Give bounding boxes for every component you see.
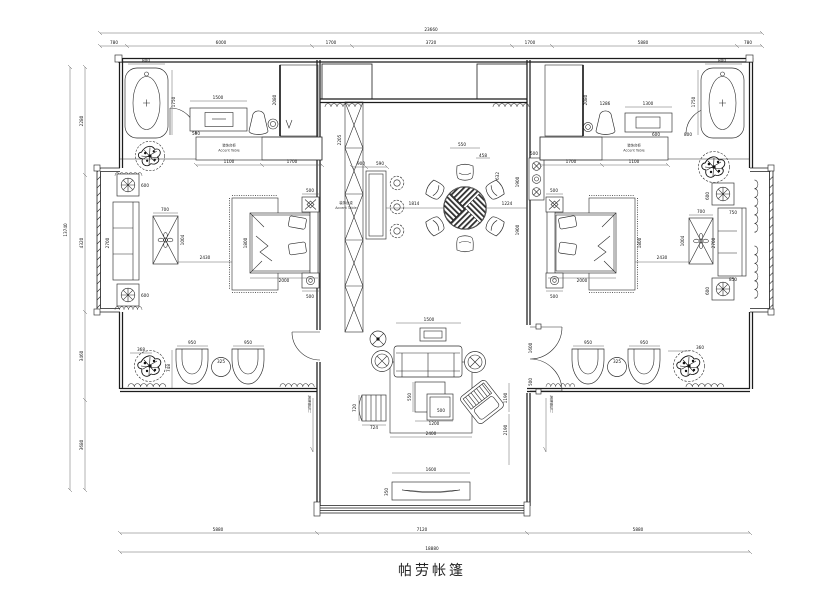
dim-tub-l-left: 1750 bbox=[171, 96, 176, 107]
dim-baysofa-right: 2700 bbox=[711, 237, 716, 248]
dim-tea-l-left: 1004 bbox=[180, 234, 185, 245]
dim-top-0: 780 bbox=[110, 40, 118, 45]
nightstand-left-bottom bbox=[302, 273, 319, 288]
dim-console-w: 900 bbox=[357, 161, 365, 166]
dim-ns-left-bot: 500 bbox=[306, 294, 314, 299]
dim-bed-l-right: 2000 bbox=[577, 278, 588, 283]
dim-sidetable-left: 325 bbox=[217, 359, 225, 364]
dim-bench-l: 720 bbox=[352, 404, 357, 412]
dim-baytable-left-2: 600 bbox=[141, 293, 149, 298]
dim-top-3: 3720 bbox=[426, 40, 437, 45]
right-wing: 2080 1286 1300 600 800 1000 800 1750 装饰台… bbox=[538, 58, 746, 384]
dim-600: 600 bbox=[652, 132, 660, 137]
dim-plant-left: 368 bbox=[137, 347, 145, 352]
dim-top-2: 1700 bbox=[326, 40, 337, 45]
dim-cab-b-left: 1700 bbox=[287, 159, 298, 164]
dim-chair1-right: 950 bbox=[584, 340, 592, 345]
dimension-chain-bottom: 5880 7120 5880 18880 bbox=[118, 527, 752, 554]
dim-ct-d: 550 bbox=[407, 393, 412, 401]
dim-top-total: 23660 bbox=[424, 27, 438, 32]
dim-desk2: 1300 bbox=[643, 101, 654, 106]
balcony-right: 600 600 750 2700 850 bbox=[705, 183, 746, 300]
dim-tv-w: 1600 bbox=[426, 467, 437, 472]
floorplan-drawing: 23660 780 6000 1700 3720 1700 5880 780 1… bbox=[0, 0, 837, 592]
floor-lamp bbox=[370, 331, 386, 347]
dim-chair-h-left: 748 bbox=[166, 364, 171, 372]
dim-tv-d: 350 bbox=[384, 488, 389, 496]
fireplace-shelf bbox=[420, 328, 446, 341]
dim-bench-w: 724 bbox=[370, 425, 378, 430]
cabinet-label-cn-right: 装饰台柜 bbox=[627, 143, 641, 148]
shower-right bbox=[545, 65, 583, 136]
dim-800: 800 bbox=[684, 132, 692, 137]
tea-table-right bbox=[689, 218, 713, 264]
nightstand-right-bottom bbox=[546, 273, 563, 288]
dim-left-0: 2280 bbox=[79, 115, 84, 126]
sofa bbox=[394, 346, 462, 377]
dim-top-5: 5880 bbox=[638, 40, 649, 45]
dim-top-6: 780 bbox=[744, 40, 752, 45]
dim-baysofa-left: 2700 bbox=[105, 237, 110, 248]
dim-bed-gap-right: 2430 bbox=[657, 255, 668, 260]
sliding-door-label-left: 玻璃推拉门 bbox=[307, 394, 313, 452]
bathtub-left bbox=[125, 68, 168, 138]
dim-tub-w-right: 800 bbox=[718, 58, 726, 63]
dim-bottom-2: 5880 bbox=[633, 527, 644, 532]
dim-cell-2: 1900 bbox=[515, 224, 520, 235]
center-hall: 2205 装饰台桌 Accent Table 900 590 1814 1224… bbox=[335, 102, 544, 332]
dim-chair1-left: 950 bbox=[188, 340, 196, 345]
dim-baysofa-b-right: 850 bbox=[729, 277, 737, 282]
dim-living-d: 2190 bbox=[503, 424, 508, 435]
dim-shower-left: 2080 bbox=[272, 94, 277, 105]
dim-ns-right-top: 500 bbox=[550, 188, 558, 193]
dim-cab-b-right: 1700 bbox=[566, 159, 577, 164]
side-table-right bbox=[465, 352, 486, 373]
dim-door-leaf: 500 bbox=[528, 378, 533, 386]
dim-baytable-right-2: 600 bbox=[705, 287, 710, 295]
dim-rug-gap: 1190 bbox=[503, 392, 508, 403]
dim-bottom-1: 7120 bbox=[417, 527, 428, 532]
dim-bed-gap-left: 2430 bbox=[200, 255, 211, 260]
dim-console-gap: 590 bbox=[376, 161, 384, 166]
dim-cell-1: 1900 bbox=[515, 176, 520, 187]
dim-bed-l-left: 2000 bbox=[279, 278, 290, 283]
sliding-door-text-left: 玻璃推拉门 bbox=[307, 394, 311, 413]
dim-tea-w-right: 700 bbox=[697, 209, 705, 214]
dim-baysofa-w-right: 750 bbox=[729, 210, 737, 215]
balcony-left: 600 600 2700 bbox=[105, 174, 149, 306]
dim-cab-a-right: 1100 bbox=[629, 159, 640, 164]
dim-ct-a: 500 bbox=[437, 408, 445, 413]
sliding-door-text-right: 玻璃推拉门 bbox=[549, 394, 553, 413]
dim-left-2: 3460 bbox=[79, 350, 84, 361]
side-table-left bbox=[372, 351, 393, 372]
dim-chair-back: 550 bbox=[458, 142, 466, 147]
dim-left-total: 13740 bbox=[63, 223, 68, 237]
dim-ns-left-top: 500 bbox=[306, 188, 314, 193]
lounge-zone-right: 950 950 325 360 bbox=[572, 340, 705, 384]
dim-sofa-w: 1500 bbox=[424, 317, 435, 322]
living-room: 1500 550 500 1200 720 724 2400 1190 2190… bbox=[307, 317, 553, 500]
dim-sidetable-right: 325 bbox=[613, 359, 621, 364]
console-table: 装饰台桌 Accent Table bbox=[335, 171, 404, 239]
dim-dining-gap: 1814 bbox=[409, 201, 420, 206]
dim-left-1: 4320 bbox=[79, 237, 84, 248]
drawing-title: 帕劳帐篷 bbox=[398, 563, 466, 579]
armchair bbox=[459, 379, 505, 425]
tea-table-left bbox=[153, 216, 178, 264]
dim-cab-a-left: 1100 bbox=[224, 159, 235, 164]
dim-left-3: 3680 bbox=[79, 439, 84, 450]
dim-cab-strip: 500 bbox=[530, 151, 538, 156]
dim-tub-w-left: 800 bbox=[142, 58, 150, 63]
dim-chair2-left: 950 bbox=[244, 340, 252, 345]
dim-tea-l-right: 1004 bbox=[680, 235, 685, 246]
dresser-cabinet-left: 装饰台柜 Accent Table bbox=[196, 137, 322, 160]
dim-rug-w: 2400 bbox=[426, 431, 437, 436]
console-label-en: Accent Table bbox=[335, 206, 356, 210]
dim-shower-right: 2080 bbox=[583, 94, 588, 105]
dresser-cabinet-right: 装饰台柜 Accent Table bbox=[540, 137, 668, 160]
dim-chair-w: 458 bbox=[479, 153, 487, 158]
candle-cabinet-right bbox=[529, 158, 544, 200]
cabinet-label-cn-left: 装饰台柜 bbox=[222, 143, 236, 148]
dim-chair2: 1286 bbox=[600, 101, 611, 106]
lounge-zone-left: 950 950 325 368 748 bbox=[130, 340, 264, 388]
cabinet-label-en-right: Accent Table bbox=[623, 149, 644, 153]
dim-top-1: 6000 bbox=[216, 40, 227, 45]
bench bbox=[359, 395, 386, 421]
dim-plant-right: 360 bbox=[696, 345, 704, 350]
dim-500-left: 500 bbox=[192, 131, 200, 136]
console-label-cn: 装饰台桌 bbox=[339, 200, 353, 205]
plant-left-top bbox=[135, 141, 164, 170]
dimension-chain-left: 13740 2280 4320 3460 3680 bbox=[63, 65, 87, 492]
sliding-door-label-right: 玻璃推拉门 bbox=[544, 394, 554, 452]
dim-bed-w-right: 1800 bbox=[637, 237, 642, 248]
dimension-chain-top: 23660 780 6000 1700 3720 1700 5880 780 bbox=[98, 27, 764, 48]
floorplan-sheet: 23660 780 6000 1700 3720 1700 5880 780 1… bbox=[0, 0, 837, 592]
vanity-desk-right bbox=[583, 111, 672, 135]
dim-bottom-0: 5880 bbox=[213, 527, 224, 532]
dim-door-w: 1600 bbox=[528, 342, 533, 353]
dim-desk-left: 1500 bbox=[213, 95, 224, 100]
dim-wall-gap: 1224 bbox=[502, 201, 513, 206]
nightstand-left-top bbox=[302, 197, 319, 212]
dim-baytable-right-1: 600 bbox=[705, 192, 710, 200]
dim-ns-right-bot: 500 bbox=[550, 294, 558, 299]
dim-screen: 2205 bbox=[337, 134, 342, 145]
bathtub-right bbox=[701, 68, 744, 138]
dim-chair-d: 632 bbox=[495, 172, 500, 180]
dim-tub-l-right: 1750 bbox=[691, 96, 696, 107]
media-console bbox=[392, 482, 470, 500]
sliding-door-wall bbox=[314, 502, 530, 516]
shower-left bbox=[280, 65, 318, 136]
dim-ct-b: 1200 bbox=[429, 421, 440, 426]
plant-right-top bbox=[699, 152, 730, 183]
dim-tea-w-left: 700 bbox=[161, 207, 169, 212]
dim-bed-w-left: 1800 bbox=[243, 237, 248, 248]
dim-chair2-right: 950 bbox=[640, 340, 648, 345]
dim-baytable-left-1: 600 bbox=[141, 183, 149, 188]
dim-top-4: 1700 bbox=[525, 40, 536, 45]
door-left-bedroom bbox=[292, 332, 320, 360]
coffee-table bbox=[415, 382, 453, 420]
nightstand-right-top bbox=[546, 197, 563, 212]
dim-bottom-total: 18880 bbox=[425, 546, 439, 551]
vanity-desk-left bbox=[190, 108, 292, 135]
cabinet-label-en-left: Accent Table bbox=[218, 149, 239, 153]
left-wing: 800 1750 1500 500 2080 装饰台柜 Accent Table… bbox=[105, 58, 324, 388]
screen-partition bbox=[345, 102, 363, 332]
